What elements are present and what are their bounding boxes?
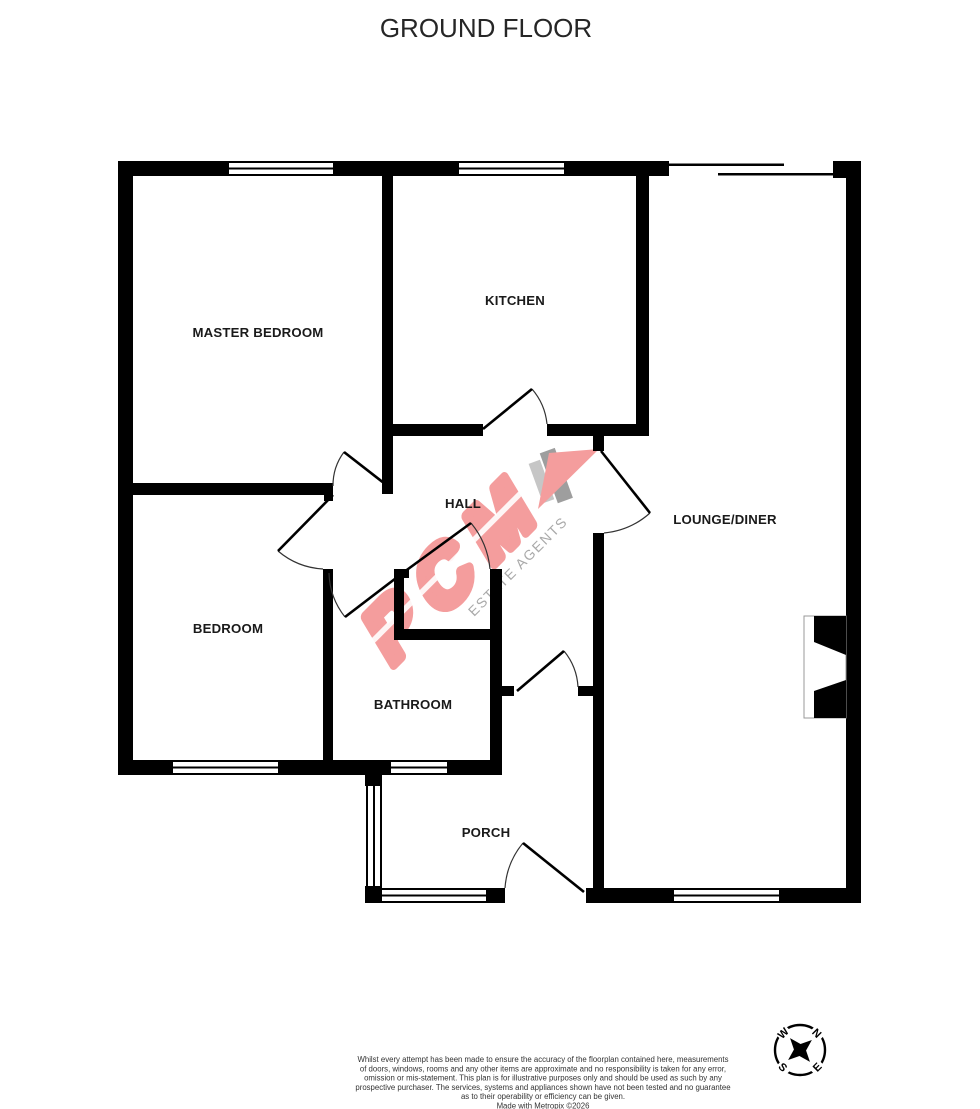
svg-text:as to their operability or eff: as to their operability or efficiency ca… <box>461 1092 625 1101</box>
svg-text:BEDROOM: BEDROOM <box>193 621 263 636</box>
svg-text:KITCHEN: KITCHEN <box>485 293 545 308</box>
svg-text:PORCH: PORCH <box>462 825 511 840</box>
svg-text:HALL: HALL <box>445 496 481 511</box>
svg-text:LOUNGE/DINER: LOUNGE/DINER <box>673 512 777 527</box>
svg-text:omission or mis-statement. Thi: omission or mis-statement. This plan is … <box>364 1074 722 1083</box>
svg-text:of doors, windows, rooms and a: of doors, windows, rooms and any other i… <box>360 1064 726 1073</box>
svg-text:BATHROOM: BATHROOM <box>374 697 452 712</box>
svg-text:Made with Metropix ©2026: Made with Metropix ©2026 <box>497 1102 590 1109</box>
svg-text:prospective purchaser. The ser: prospective purchaser. The services, sys… <box>355 1083 730 1092</box>
svg-text:Whilst every attempt has been: Whilst every attempt has been made to en… <box>358 1055 729 1064</box>
svg-text:MASTER BEDROOM: MASTER BEDROOM <box>192 325 323 340</box>
svg-text:GROUND FLOOR: GROUND FLOOR <box>380 13 592 43</box>
